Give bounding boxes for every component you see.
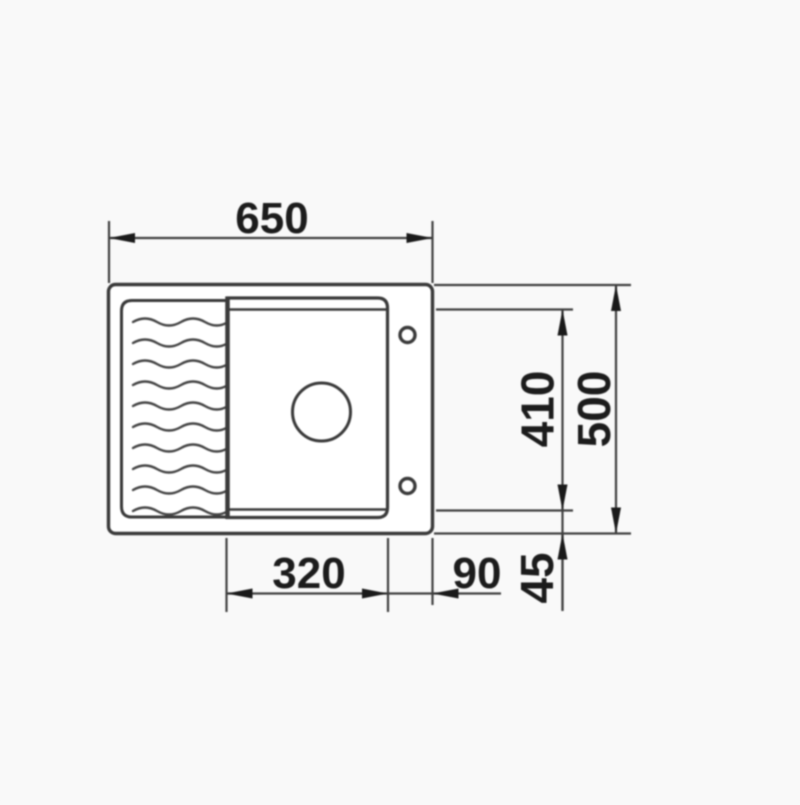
svg-text:90: 90 (453, 549, 502, 598)
svg-text:410: 410 (512, 371, 564, 448)
svg-text:650: 650 (235, 194, 308, 243)
svg-text:500: 500 (568, 371, 620, 448)
svg-text:45: 45 (511, 552, 563, 603)
svg-text:320: 320 (272, 549, 345, 598)
